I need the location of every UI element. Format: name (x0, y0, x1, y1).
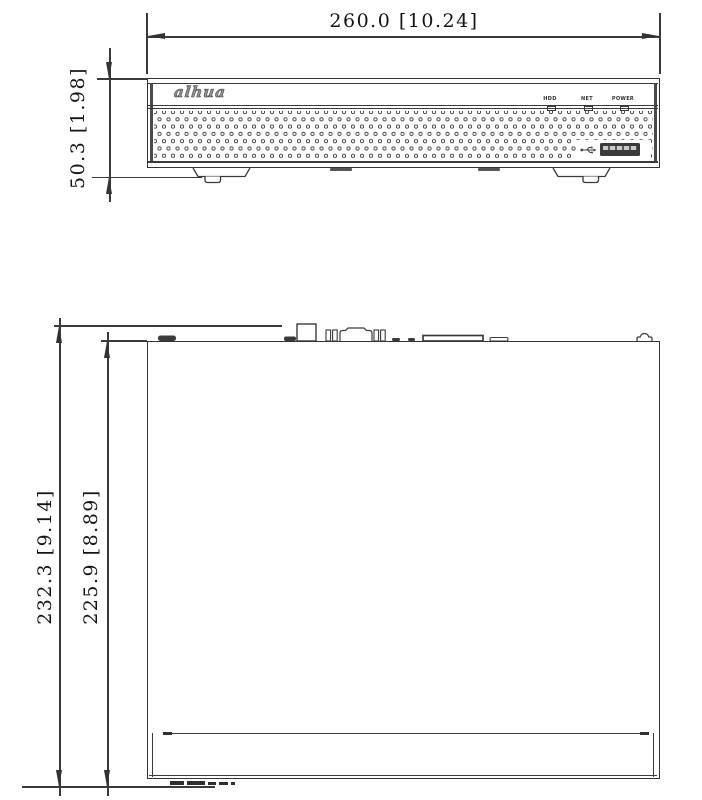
front-left-foot (185, 168, 275, 185)
front-left-endcap (150, 83, 153, 161)
dim-arrow-up-icon (106, 177, 112, 194)
front-detail-dash (208, 782, 216, 785)
front-bottom-groove (148, 161, 658, 162)
top-outer-dimension-label: 232.3 [9.14] (34, 489, 56, 625)
led-label-power: POWER (603, 96, 643, 102)
extension-line (101, 340, 147, 341)
front-groove-line (148, 105, 658, 106)
front-bezel-line (164, 733, 648, 734)
dimension-drawing-canvas: 260.0 [10.24] 50.3 [1.98] alhua HDD NET … (0, 0, 702, 800)
connector-tab (374, 330, 379, 341)
connector-tab (326, 330, 331, 341)
side-wall-line (152, 733, 153, 777)
bezel-line-tick (640, 732, 649, 735)
top-inner-dimension-label: 225.9 [8.89] (80, 489, 102, 625)
connector-tab (333, 330, 338, 341)
dimension-line (59, 318, 60, 796)
extension-line (22, 786, 215, 787)
dim-arrow-right-icon (642, 33, 659, 39)
front-groove-line (148, 108, 658, 109)
dim-arrow-down-icon (106, 62, 112, 79)
front-width-dimension-label: 260.0 [10.24] (329, 10, 478, 32)
led-label-net: NET (567, 96, 607, 102)
front-right-foot (545, 168, 635, 185)
dim-arrow-left-icon (148, 33, 165, 39)
front-height-dimension-label: 50.3 [1.98] (67, 67, 89, 189)
brand-logo: alhua (173, 83, 227, 101)
extension-line (146, 13, 147, 74)
front-detail-dash (231, 782, 235, 785)
bezel-line-tick (163, 732, 172, 735)
dim-arrow-down-icon (56, 770, 62, 787)
device-front-panel: alhua HDD NET POWER (147, 78, 660, 168)
screw-dome (637, 334, 652, 342)
usb-cutout (576, 140, 651, 163)
led-label-hdd: HDD (530, 96, 570, 102)
connector-tab (381, 330, 386, 341)
usb-icon (580, 145, 597, 155)
dimension-line (107, 332, 108, 796)
power-connector (297, 324, 316, 341)
vga-connector (340, 328, 372, 341)
front-right-endcap (654, 83, 657, 161)
front-detail-dash (219, 782, 228, 785)
dim-arrow-up-icon (104, 341, 110, 358)
device-top-view (147, 341, 660, 779)
rear-connector-profile (147, 314, 660, 342)
dimension-line (147, 36, 660, 37)
usb-port (600, 143, 640, 156)
dim-arrow-down-icon (104, 770, 110, 787)
usb-port-contacts (603, 146, 637, 150)
dim-arrow-up-icon (56, 326, 62, 343)
extension-line (659, 13, 660, 74)
front-detail-dash (187, 781, 205, 785)
side-wall-line (653, 733, 654, 777)
extension-line (97, 78, 150, 79)
front-detail-dash (170, 781, 184, 785)
front-bottom-tab (478, 168, 500, 172)
front-bottom-tab (330, 168, 352, 172)
front-edge-line (149, 775, 657, 776)
